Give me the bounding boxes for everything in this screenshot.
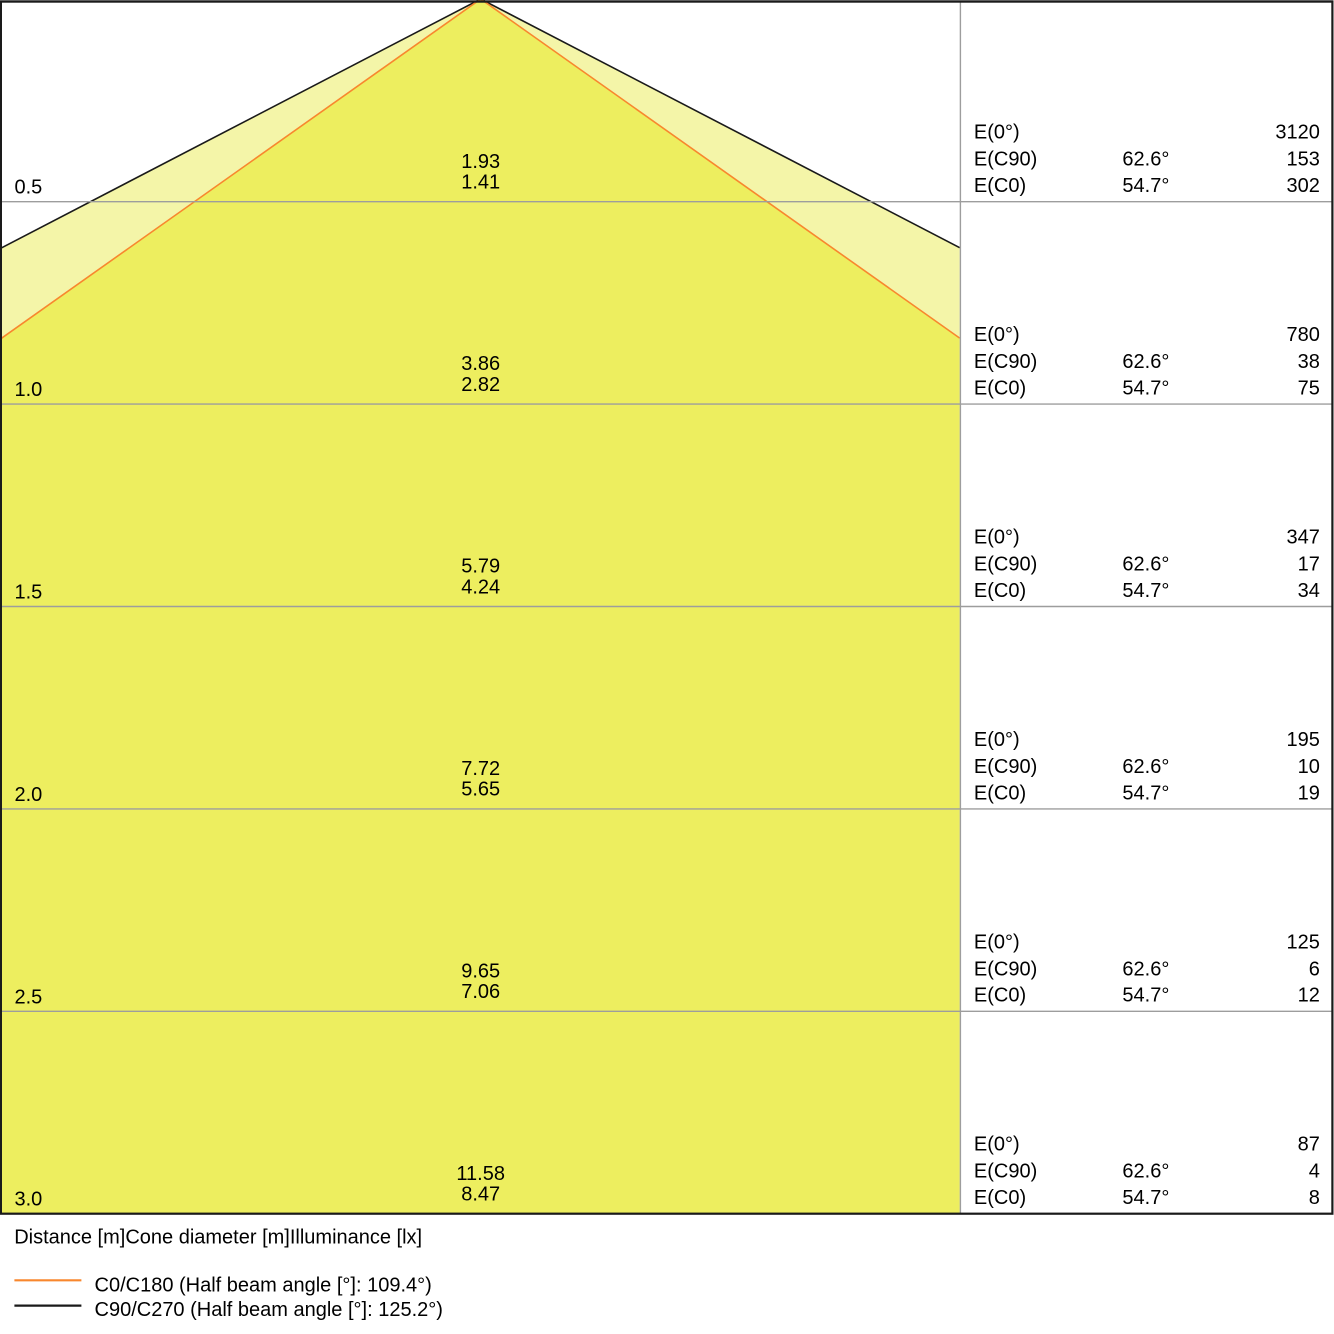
svg-text:54.7°: 54.7° bbox=[1122, 580, 1169, 602]
svg-text:2.82: 2.82 bbox=[461, 374, 500, 396]
svg-text:8: 8 bbox=[1309, 1187, 1320, 1209]
svg-text:780: 780 bbox=[1287, 324, 1320, 346]
svg-text:E(0°): E(0°) bbox=[974, 324, 1020, 346]
svg-text:347: 347 bbox=[1287, 527, 1320, 549]
svg-text:3.0: 3.0 bbox=[15, 1189, 43, 1211]
svg-text:62.6°: 62.6° bbox=[1122, 958, 1169, 980]
svg-text:9.65: 9.65 bbox=[461, 960, 500, 982]
svg-text:1.5: 1.5 bbox=[15, 582, 43, 604]
svg-text:C90/C270 (Half beam angle [°]:: C90/C270 (Half beam angle [°]: 125.2°) bbox=[95, 1299, 443, 1321]
svg-text:54.7°: 54.7° bbox=[1122, 782, 1169, 804]
svg-text:54.7°: 54.7° bbox=[1122, 985, 1169, 1007]
svg-text:6: 6 bbox=[1309, 958, 1320, 980]
svg-text:E(0°): E(0°) bbox=[974, 1134, 1020, 1156]
svg-text:E(C0): E(C0) bbox=[974, 378, 1026, 400]
svg-text:34: 34 bbox=[1298, 580, 1320, 602]
svg-text:4: 4 bbox=[1309, 1161, 1320, 1183]
svg-text:54.7°: 54.7° bbox=[1122, 1187, 1169, 1209]
svg-text:E(C90): E(C90) bbox=[974, 554, 1037, 576]
svg-text:C0/C180 (Half beam angle [°]:: C0/C180 (Half beam angle [°]: 109.4°) bbox=[95, 1275, 432, 1297]
svg-text:3.86: 3.86 bbox=[461, 353, 500, 375]
svg-text:195: 195 bbox=[1287, 729, 1320, 751]
svg-text:8.47: 8.47 bbox=[461, 1184, 500, 1206]
svg-text:2.5: 2.5 bbox=[15, 986, 43, 1008]
svg-text:1.41: 1.41 bbox=[461, 172, 500, 194]
svg-text:E(0°): E(0°) bbox=[974, 931, 1020, 953]
svg-text:E(C0): E(C0) bbox=[974, 580, 1026, 602]
svg-text:3120: 3120 bbox=[1275, 122, 1320, 144]
svg-text:19: 19 bbox=[1298, 782, 1320, 804]
svg-text:153: 153 bbox=[1287, 149, 1320, 171]
svg-text:75: 75 bbox=[1298, 378, 1320, 400]
svg-text:54.7°: 54.7° bbox=[1122, 175, 1169, 197]
svg-text:1.93: 1.93 bbox=[461, 151, 500, 173]
svg-text:4.24: 4.24 bbox=[461, 576, 500, 598]
svg-text:E(0°): E(0°) bbox=[974, 729, 1020, 751]
svg-text:E(C0): E(C0) bbox=[974, 985, 1026, 1007]
svg-text:302: 302 bbox=[1287, 175, 1320, 197]
svg-text:7.06: 7.06 bbox=[461, 981, 500, 1003]
svg-text:62.6°: 62.6° bbox=[1122, 554, 1169, 576]
svg-text:Distance [m]Cone diameter [m]I: Distance [m]Cone diameter [m]Illuminance… bbox=[14, 1227, 422, 1249]
svg-text:E(C90): E(C90) bbox=[974, 756, 1037, 778]
svg-text:62.6°: 62.6° bbox=[1122, 1161, 1169, 1183]
svg-text:38: 38 bbox=[1298, 351, 1320, 373]
svg-text:17: 17 bbox=[1298, 554, 1320, 576]
svg-text:5.65: 5.65 bbox=[461, 779, 500, 801]
svg-text:54.7°: 54.7° bbox=[1122, 378, 1169, 400]
svg-text:62.6°: 62.6° bbox=[1122, 149, 1169, 171]
svg-text:62.6°: 62.6° bbox=[1122, 351, 1169, 373]
svg-text:E(C90): E(C90) bbox=[974, 351, 1037, 373]
svg-text:E(C90): E(C90) bbox=[974, 149, 1037, 171]
svg-text:1.0: 1.0 bbox=[15, 379, 43, 401]
svg-text:E(C90): E(C90) bbox=[974, 1161, 1037, 1183]
svg-text:10: 10 bbox=[1298, 756, 1320, 778]
svg-text:E(C0): E(C0) bbox=[974, 1187, 1026, 1209]
svg-text:7.72: 7.72 bbox=[461, 758, 500, 780]
svg-text:0.5: 0.5 bbox=[15, 177, 43, 199]
svg-text:E(0°): E(0°) bbox=[974, 527, 1020, 549]
svg-text:E(C0): E(C0) bbox=[974, 782, 1026, 804]
svg-text:87: 87 bbox=[1298, 1134, 1320, 1156]
svg-text:2.0: 2.0 bbox=[15, 784, 43, 806]
svg-text:125: 125 bbox=[1287, 931, 1320, 953]
svg-text:11.58: 11.58 bbox=[456, 1163, 505, 1185]
svg-text:5.79: 5.79 bbox=[461, 556, 500, 578]
svg-text:12: 12 bbox=[1298, 985, 1320, 1007]
svg-text:E(C0): E(C0) bbox=[974, 175, 1026, 197]
svg-text:E(C90): E(C90) bbox=[974, 958, 1037, 980]
svg-text:E(0°): E(0°) bbox=[974, 122, 1020, 144]
svg-text:62.6°: 62.6° bbox=[1122, 756, 1169, 778]
